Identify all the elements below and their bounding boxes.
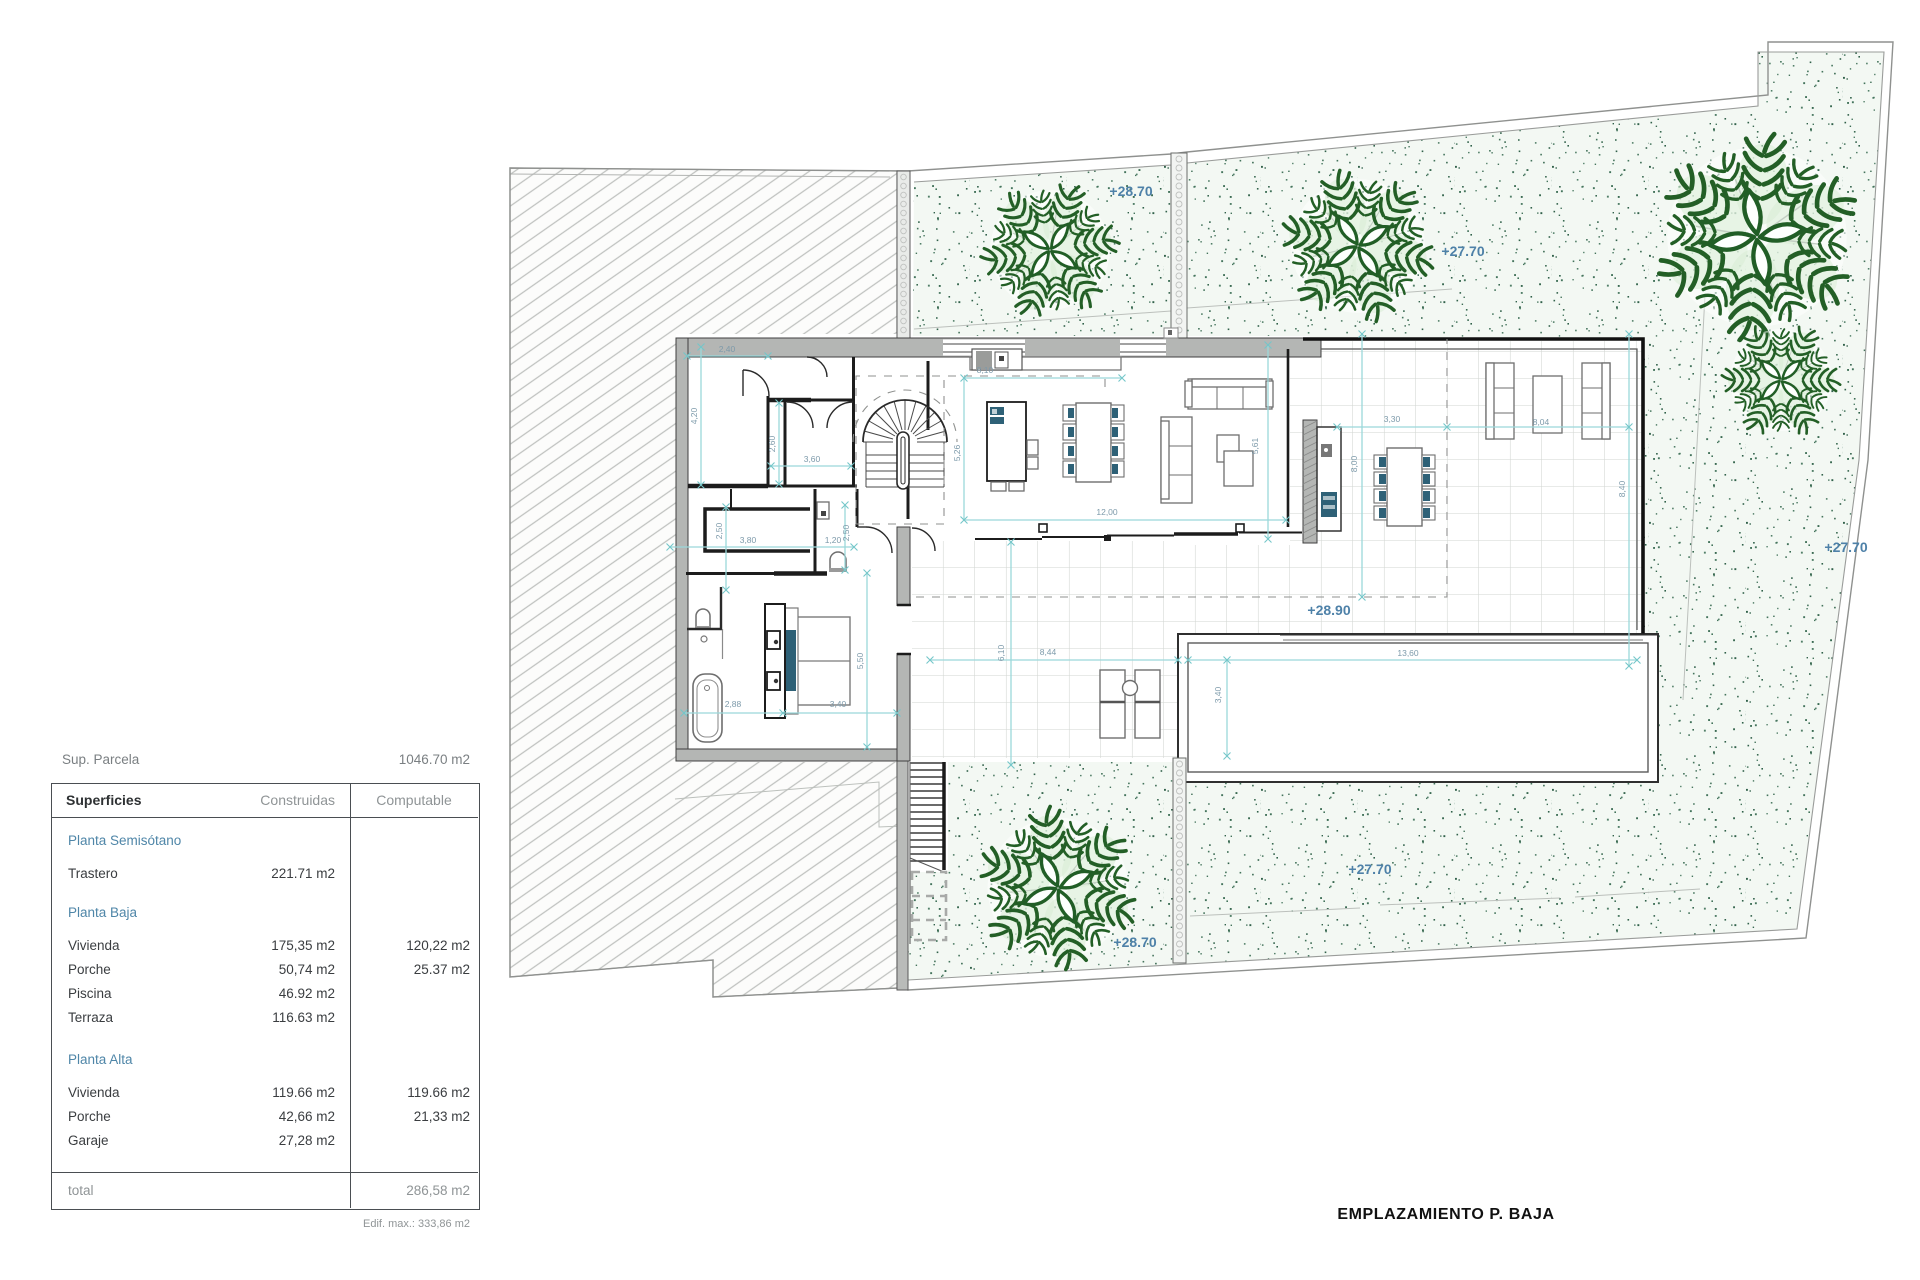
svg-text:+28.70: +28.70 [1113, 934, 1156, 950]
svg-text:2,40: 2,40 [719, 344, 736, 354]
svg-text:+27.70: +27.70 [1824, 539, 1867, 555]
svg-text:6,10: 6,10 [996, 644, 1006, 661]
svg-text:2,60: 2,60 [767, 435, 777, 452]
svg-text:5,50: 5,50 [855, 652, 865, 669]
svg-text:5,61: 5,61 [1250, 437, 1260, 454]
svg-text:EMPLAZAMIENTO P. BAJA: EMPLAZAMIENTO P. BAJA [1337, 1206, 1554, 1223]
svg-text:3,60: 3,60 [804, 454, 821, 464]
svg-text:3,30: 3,30 [1384, 414, 1401, 424]
svg-text:5,26: 5,26 [952, 444, 962, 461]
svg-text:2,50: 2,50 [841, 524, 851, 541]
svg-text:3,40: 3,40 [1213, 686, 1223, 703]
svg-text:13,60: 13,60 [1397, 648, 1419, 658]
svg-text:+28.70: +28.70 [1109, 183, 1152, 199]
svg-text:3,80: 3,80 [740, 535, 757, 545]
svg-text:3,40: 3,40 [830, 699, 847, 709]
svg-text:+28.90: +28.90 [1307, 602, 1350, 618]
svg-text:8,44: 8,44 [1040, 647, 1057, 657]
svg-text:4,20: 4,20 [689, 407, 699, 424]
svg-text:+27.70: +27.70 [1441, 243, 1484, 259]
svg-text:2,50: 2,50 [714, 522, 724, 539]
svg-text:8,00: 8,00 [1349, 455, 1359, 472]
svg-text:8,10: 8,10 [977, 365, 994, 375]
svg-text:+27.70: +27.70 [1348, 861, 1391, 877]
svg-text:8,04: 8,04 [1533, 417, 1550, 427]
svg-text:2,88: 2,88 [725, 699, 742, 709]
svg-text:8,40: 8,40 [1617, 480, 1627, 497]
svg-text:12,00: 12,00 [1096, 507, 1118, 517]
svg-text:1,20: 1,20 [825, 535, 842, 545]
